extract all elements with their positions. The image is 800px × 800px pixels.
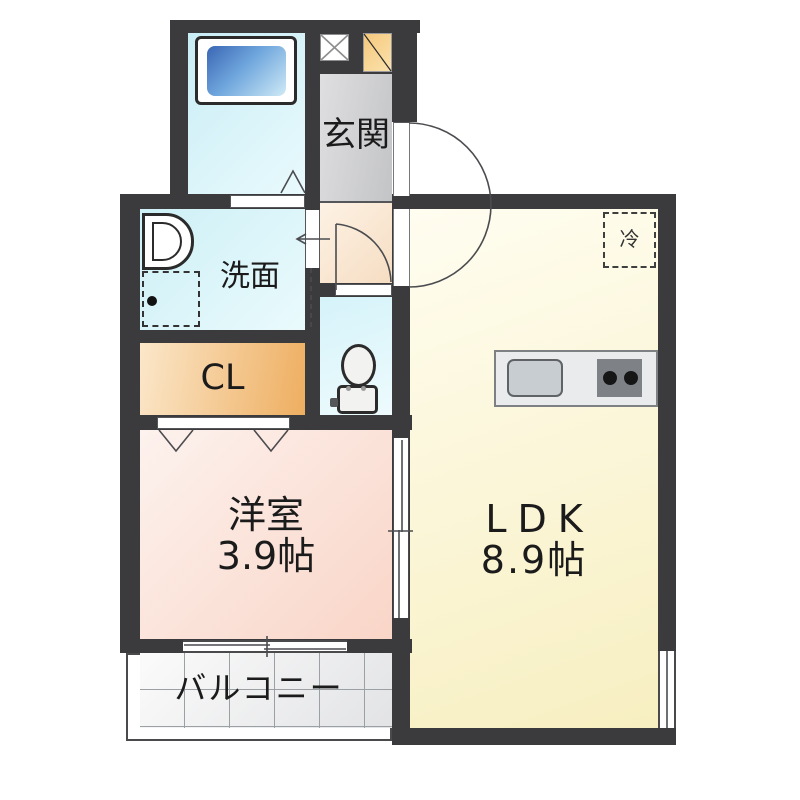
ldk-size: 8.9帖 — [410, 540, 658, 581]
front-doorway — [393, 122, 410, 196]
pipe-shaft-icon — [320, 34, 349, 61]
toilet-doorway — [335, 284, 392, 296]
balcony-window — [183, 640, 347, 653]
ldk-right-window — [658, 651, 676, 728]
label-washroom: 洗面 — [190, 261, 310, 293]
room-hallway — [320, 201, 392, 283]
wall-frontdoor-col — [392, 20, 417, 122]
western-room-name: 洋室 — [140, 495, 392, 536]
label-refrigerator: 冷 — [603, 229, 656, 251]
stove-burner-left — [603, 371, 617, 385]
kitchen-sink-icon — [507, 359, 563, 397]
wall-ldk-bottom — [392, 728, 676, 745]
label-ldk: LDK 8.9帖 — [410, 499, 658, 581]
western-ldk-sliding-door — [393, 438, 409, 618]
room-ldk — [410, 209, 658, 728]
washroom-sliding-doorway — [305, 210, 320, 268]
toilet-hinge-right — [361, 386, 366, 391]
toilet-hinge-left — [346, 386, 351, 391]
meter-box-icon — [363, 33, 392, 72]
label-western-room: 洋室 3.9帖 — [140, 495, 392, 577]
ldk-name: LDK — [410, 499, 658, 540]
label-closet: CL — [140, 360, 305, 398]
floorplan-canvas: 玄関 洗面 CL 洋室 3.9帖 LDK 8.9帖 バルコニー 冷 — [0, 0, 800, 800]
bathroom-doorway — [230, 195, 305, 208]
wall-ldk-top — [392, 194, 676, 209]
hall-ldk-doorway — [393, 209, 410, 286]
toilet-icon — [341, 344, 376, 387]
wall-top — [170, 20, 420, 33]
toilet-tank — [337, 385, 378, 414]
western-room-size: 3.9帖 — [140, 536, 392, 577]
closet-doorway — [157, 417, 290, 429]
label-balcony: バルコニー — [126, 671, 392, 706]
wall-washroom-cl — [140, 330, 305, 343]
stove-burner-right — [624, 371, 638, 385]
toilet-handle — [330, 398, 338, 407]
wall-bath-left — [170, 33, 188, 194]
bathtub-water — [207, 46, 286, 96]
faucet-dot — [147, 296, 157, 306]
label-entrance: 玄関 — [320, 117, 392, 154]
